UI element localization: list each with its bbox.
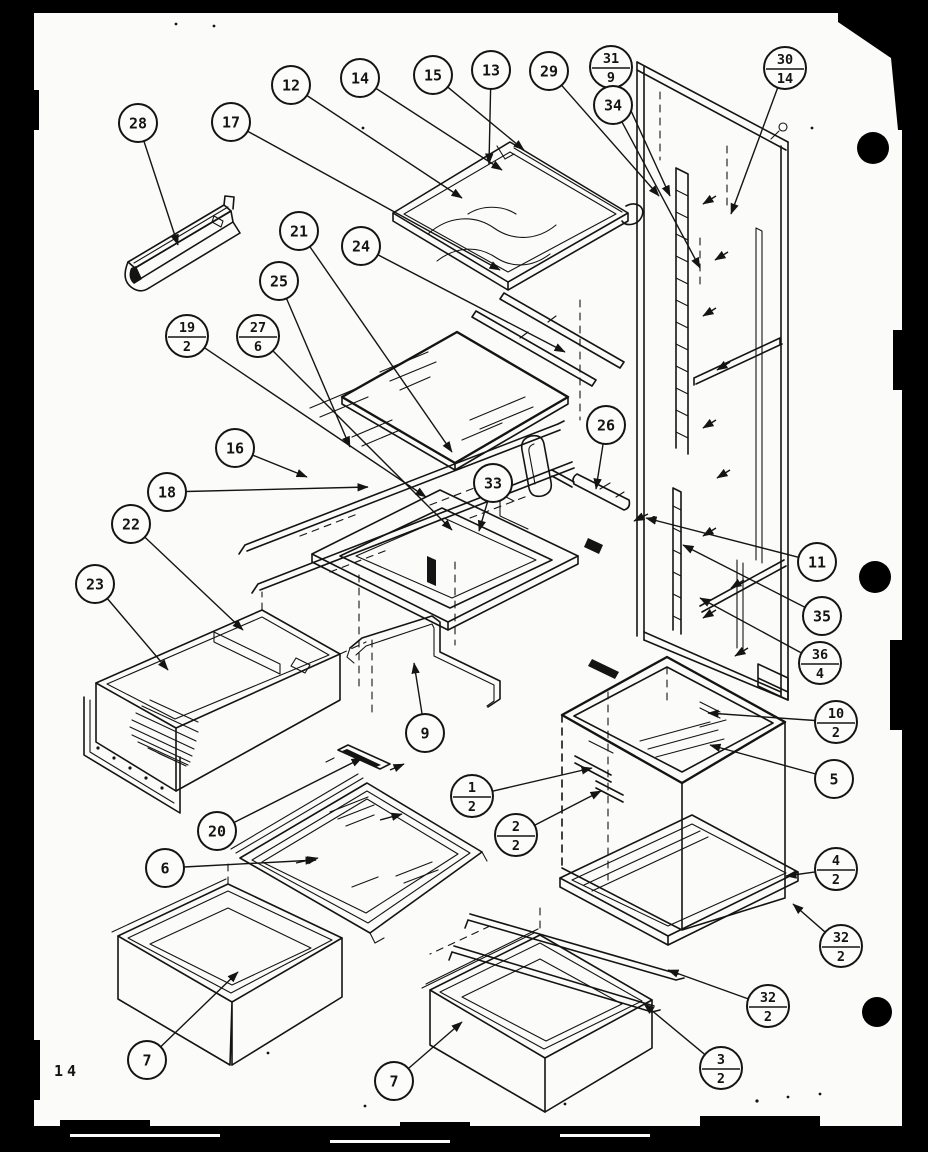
svg-text:2: 2 xyxy=(183,339,191,355)
svg-text:19: 19 xyxy=(179,320,195,336)
callout-11: 11 xyxy=(646,518,836,581)
svg-text:26: 26 xyxy=(597,417,615,435)
callout-7a: 7 xyxy=(128,972,238,1079)
svg-text:17: 17 xyxy=(222,114,240,132)
part-freezer-drawer-left xyxy=(112,879,342,1065)
callout-30-14: 3014 xyxy=(731,47,806,214)
svg-text:32: 32 xyxy=(833,930,849,946)
svg-text:2: 2 xyxy=(837,949,845,965)
svg-text:6: 6 xyxy=(160,860,169,878)
svg-text:27: 27 xyxy=(250,320,266,336)
part-spill-shelf xyxy=(393,142,643,290)
callout-32-2b: 322 xyxy=(668,970,789,1027)
scan-blob-middle xyxy=(859,561,891,593)
svg-text:12: 12 xyxy=(282,77,300,95)
svg-text:11: 11 xyxy=(808,554,826,572)
callout-4-2: 42 xyxy=(786,848,857,890)
diagram-line-art xyxy=(84,23,821,1112)
svg-text:2: 2 xyxy=(512,819,520,835)
part-support-bracket xyxy=(347,616,500,707)
svg-text:3: 3 xyxy=(717,1052,725,1068)
svg-text:20: 20 xyxy=(208,823,226,841)
callout-10-2: 102 xyxy=(708,701,857,743)
part-drawer-glide xyxy=(326,745,404,770)
part-slide-frame xyxy=(430,815,798,1012)
svg-text:24: 24 xyxy=(352,238,370,256)
svg-text:9: 9 xyxy=(420,725,429,743)
svg-text:4: 4 xyxy=(832,853,840,869)
svg-text:18: 18 xyxy=(158,484,176,502)
svg-text:9: 9 xyxy=(607,70,615,86)
svg-text:7: 7 xyxy=(389,1073,398,1091)
part-door-rail xyxy=(125,196,240,291)
svg-text:13: 13 xyxy=(482,62,500,80)
part-crisper-cover-frame xyxy=(312,490,603,630)
callout-23: 23 xyxy=(76,565,168,670)
callout-7b: 7 xyxy=(375,1022,462,1100)
svg-text:6: 6 xyxy=(254,339,262,355)
callout-9: 9 xyxy=(406,663,444,752)
svg-text:30: 30 xyxy=(777,52,793,68)
callout-layer: 2817121415132931934301421242519227616182… xyxy=(76,46,862,1100)
svg-text:7: 7 xyxy=(142,1052,151,1070)
scan-blob-top xyxy=(857,132,889,164)
callout-18: 18 xyxy=(148,473,368,511)
callout-1-2: 12 xyxy=(451,768,592,817)
svg-text:22: 22 xyxy=(122,516,140,534)
svg-text:23: 23 xyxy=(86,576,104,594)
callout-13: 13 xyxy=(472,51,510,164)
svg-text:31: 31 xyxy=(603,51,619,67)
callout-28: 28 xyxy=(119,104,178,245)
svg-text:35: 35 xyxy=(813,608,831,626)
part-crank-handle xyxy=(522,436,656,521)
svg-text:36: 36 xyxy=(812,647,828,663)
svg-text:5: 5 xyxy=(829,771,838,789)
exploded-parts-diagram: 2817121415132931934301421242519227616182… xyxy=(0,0,928,1152)
svg-text:2: 2 xyxy=(468,799,476,815)
svg-text:2: 2 xyxy=(717,1071,725,1087)
svg-text:2: 2 xyxy=(832,872,840,888)
callout-22: 22 xyxy=(112,505,243,630)
svg-text:14: 14 xyxy=(351,70,369,88)
parts-diagram-page: 2817121415132931934301421242519227616182… xyxy=(0,0,928,1152)
scan-speckles xyxy=(175,23,822,1108)
svg-text:28: 28 xyxy=(129,115,147,133)
callout-26: 26 xyxy=(587,406,625,489)
callout-32-2a: 322 xyxy=(793,904,862,967)
svg-text:16: 16 xyxy=(226,440,244,458)
svg-text:32: 32 xyxy=(760,990,776,1006)
part-shelf-trim-rails xyxy=(472,293,624,386)
callout-16: 16 xyxy=(216,429,307,477)
svg-text:29: 29 xyxy=(540,63,558,81)
svg-text:21: 21 xyxy=(290,223,308,241)
svg-text:1: 1 xyxy=(468,780,476,796)
callout-34: 34 xyxy=(594,86,700,268)
callout-2-2: 22 xyxy=(495,791,601,856)
svg-text:2: 2 xyxy=(764,1009,772,1025)
callout-3-2: 32 xyxy=(644,1004,742,1089)
svg-text:2: 2 xyxy=(832,725,840,741)
callout-20: 20 xyxy=(198,758,362,850)
svg-text:15: 15 xyxy=(424,67,442,85)
callout-27-6: 276 xyxy=(237,315,452,530)
svg-text:25: 25 xyxy=(270,273,288,291)
svg-text:4: 4 xyxy=(816,666,824,682)
page-number-label: 14 xyxy=(54,1062,80,1080)
svg-text:2: 2 xyxy=(512,838,520,854)
part-crisper-drawers xyxy=(84,592,366,813)
callout-19-2: 192 xyxy=(166,315,426,497)
svg-text:10: 10 xyxy=(828,706,844,722)
svg-text:34: 34 xyxy=(604,97,622,115)
svg-text:33: 33 xyxy=(484,475,502,493)
scan-blob-bottom xyxy=(862,997,892,1027)
part-slide-shelf xyxy=(231,774,487,943)
svg-text:14: 14 xyxy=(777,71,793,87)
callout-25: 25 xyxy=(260,262,350,447)
